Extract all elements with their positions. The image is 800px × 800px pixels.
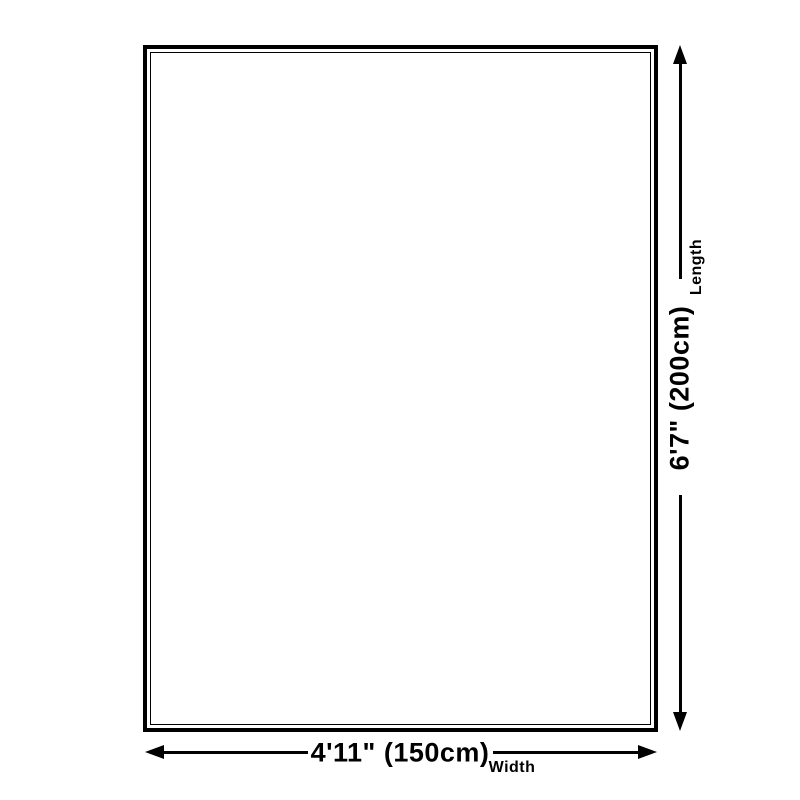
rug-outline [143, 45, 658, 732]
length-arrow-down-icon [673, 712, 687, 731]
length-axis-label: Length [689, 239, 705, 295]
length-dimension-line-bottom [679, 495, 682, 713]
length-value-label: 6'7" (200cm) [667, 306, 694, 471]
width-arrow-left-icon [145, 745, 164, 759]
width-axis-label: Width [489, 760, 536, 776]
rug-inner-border [150, 52, 651, 725]
width-value-label: 4'11" (150cm) [311, 740, 490, 767]
width-dimension-line-left [163, 751, 308, 754]
width-dimension-line-right [493, 751, 639, 754]
length-dimension-line-top [679, 62, 682, 279]
size-diagram: Length 6'7" (200cm) 4'11" (150cm) Width [0, 0, 800, 800]
width-arrow-right-icon [638, 745, 657, 759]
